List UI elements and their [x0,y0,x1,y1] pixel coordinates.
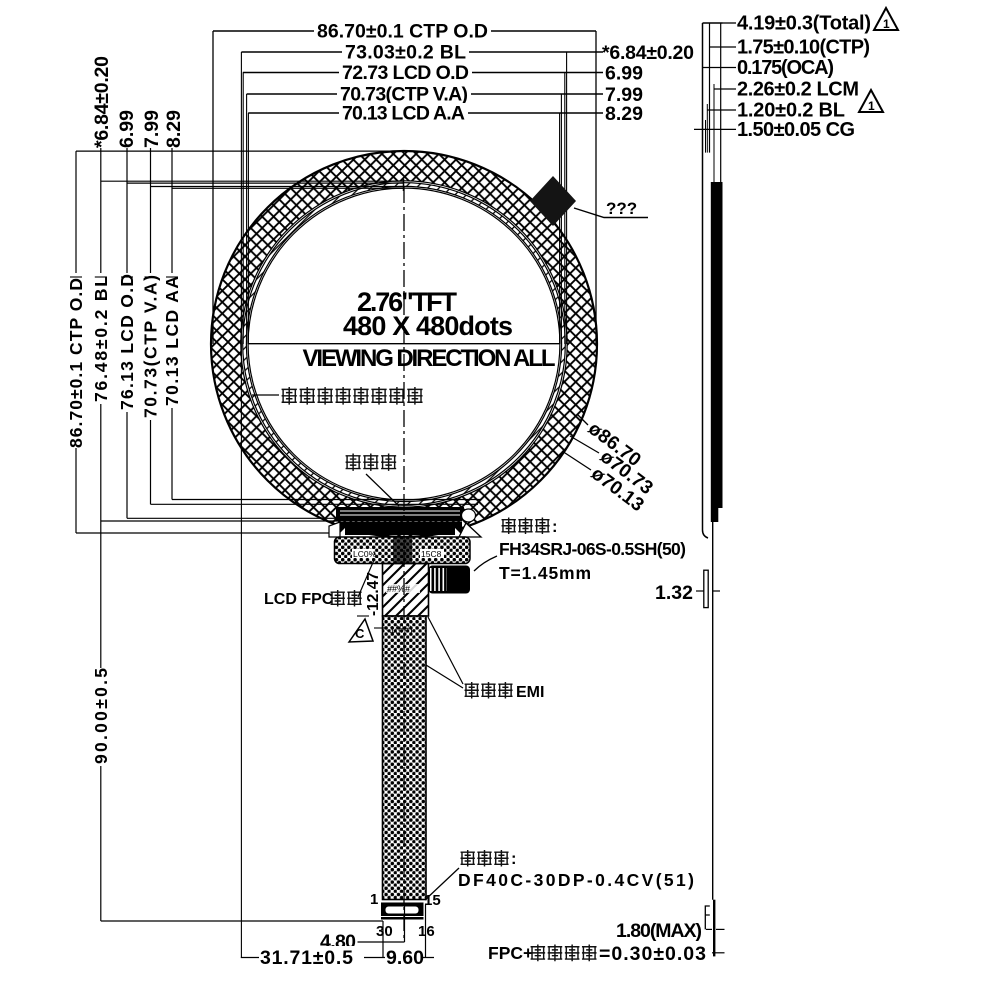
svg-text:-12.47: -12.47 [365,572,382,616]
svg-text::: : [552,518,558,536]
svg-text:LC0%: LC0% [353,549,377,559]
svg-text:15: 15 [424,892,441,909]
svg-text:##%#: ##%# [387,584,410,594]
svg-text:1: 1 [868,99,875,113]
svg-text:480 X 480dots: 480 X 480dots [343,311,513,341]
svg-text:8.29: 8.29 [163,110,185,148]
svg-text::: : [511,850,517,868]
svg-text:6.99: 6.99 [116,110,138,148]
svg-text:C: C [355,626,365,641]
svg-text:4.19±0.3(Total): 4.19±0.3(Total) [737,13,871,35]
svg-text:1.50±0.05 CG: 1.50±0.05 CG [737,119,855,141]
svg-text:*6.84±0.20: *6.84±0.20 [91,56,113,148]
svg-text:1: 1 [883,17,890,31]
svg-text:1: 1 [370,891,378,908]
svg-text:0.175(OCA): 0.175(OCA) [737,57,834,79]
svg-text:9.60: 9.60 [386,947,424,969]
svg-text:73.03±0.2 BL: 73.03±0.2 BL [345,42,466,64]
svg-text:DF40C-30DP-0.4CV(51): DF40C-30DP-0.4CV(51) [458,870,694,890]
svg-text:???: ??? [606,199,637,218]
svg-text:FH34SRJ-06S-0.5SH(50): FH34SRJ-06S-0.5SH(50) [499,539,686,559]
svg-text:T=1.45mm: T=1.45mm [499,563,591,583]
svg-text:1.80(MAX): 1.80(MAX) [616,920,702,942]
svg-text:31.71±0.5: 31.71±0.5 [260,947,353,969]
svg-text:-1(##): -1(##) [386,625,413,636]
svg-text:EMI: EMI [516,684,544,701]
svg-text:90.00±0.5: 90.00±0.5 [91,668,111,764]
svg-text:70.13 LCD A.A: 70.13 LCD A.A [342,103,465,125]
svg-text:15C8: 15C8 [421,549,442,559]
svg-text:72.73 LCD O.D: 72.73 LCD O.D [342,62,469,84]
svg-text:VIEWING DIRECTION ALL: VIEWING DIRECTION ALL [303,345,556,372]
svg-text:16: 16 [418,923,435,940]
svg-text:*6.84±0.20: *6.84±0.20 [602,42,694,64]
svg-text:2.26±0.2 LCM: 2.26±0.2 LCM [737,79,859,101]
svg-text:1.75±0.10(CTP): 1.75±0.10(CTP) [737,37,870,59]
svg-text:6.99: 6.99 [605,63,643,85]
svg-text:86.70±0.1 CTP O.D: 86.70±0.1 CTP O.D [317,21,488,43]
svg-text:=0.30±0.03: =0.30±0.03 [599,943,706,965]
svg-text:1.32: 1.32 [655,582,693,604]
svg-text:76.13 LCD O.D: 76.13 LCD O.D [117,274,137,410]
svg-text:86.70±0.1 CTP O.D: 86.70±0.1 CTP O.D [66,278,86,448]
svg-text:70.13 LCD AA: 70.13 LCD AA [162,276,182,406]
svg-text:30: 30 [376,923,393,940]
svg-text:8.29: 8.29 [605,103,643,125]
svg-text:FPC+: FPC+ [488,943,533,963]
svg-text:LCD FPC: LCD FPC [264,591,334,608]
svg-text:7.99: 7.99 [141,110,163,148]
